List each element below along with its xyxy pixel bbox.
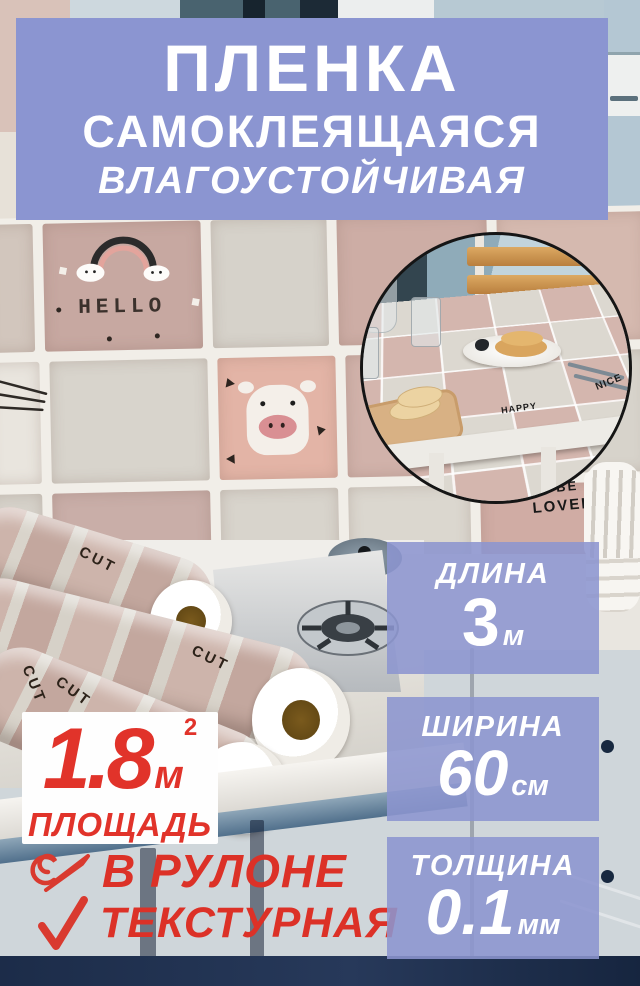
- table-leg: [541, 447, 556, 501]
- spec-thickness-unit: мм: [518, 909, 561, 942]
- feature-in-roll-label: В РУЛОНЕ: [102, 844, 347, 898]
- checkmark-icon: [36, 894, 90, 952]
- table-film-surface: [360, 275, 632, 504]
- cut-text: CUT: [52, 673, 94, 710]
- area-unit: м: [154, 753, 184, 798]
- feature-in-roll: В РУЛОНЕ: [24, 842, 347, 900]
- bg-appliance: [606, 52, 640, 116]
- spec-width-value: 60: [437, 740, 508, 807]
- area-value: 1.8: [43, 716, 151, 802]
- film-roll-core: [282, 700, 320, 740]
- roll-icon: [24, 842, 96, 900]
- spec-badge-length: ДЛИНА 3 м: [387, 542, 599, 674]
- product-image: HELLO: [0, 0, 640, 986]
- vase: [360, 261, 397, 333]
- bg-appliance-slot: [610, 96, 638, 101]
- rainbow-icon: [73, 229, 174, 283]
- area-value-line: 1.8 м 2: [22, 716, 218, 808]
- area-label: ПЛОЩАДЬ: [22, 806, 218, 844]
- cabinet-base-strip: [0, 956, 640, 986]
- wall-tile: [210, 218, 329, 348]
- table-leg: [429, 453, 444, 504]
- cow-face-icon: [217, 356, 338, 480]
- spec-length-value: 3: [462, 587, 500, 658]
- banner: ПЛЕНКА САМОКЛЕЯЩАЯСЯ ВЛАГОУСТОЙЧИВАЯ: [16, 18, 608, 220]
- feature-textured: ТЕКСТУРНАЯ: [36, 894, 398, 952]
- wall-tile: [0, 224, 35, 353]
- cabinet-knob: [601, 740, 614, 753]
- banner-tagline: ВЛАГОУСТОЙЧИВАЯ: [98, 161, 526, 203]
- bg-wall-right: [604, 0, 640, 236]
- hello-tile-art: HELLO: [42, 220, 203, 351]
- spec-width-unit: см: [511, 770, 549, 803]
- area-superscript: 2: [184, 714, 197, 742]
- chair-slat: [467, 247, 617, 266]
- spec-length-unit: м: [503, 620, 524, 653]
- cabinet-knob: [601, 870, 614, 883]
- drinking-glass: [411, 297, 441, 347]
- cut-text: CUT: [189, 642, 232, 675]
- banner-subtitle: САМОКЛЕЯЩАЯСЯ: [82, 108, 541, 155]
- drinking-glass: [360, 327, 379, 379]
- table-inset-photo: HAPPY NICE BE LOVELY: [360, 232, 632, 504]
- whiskers-icon: [0, 368, 51, 429]
- wall-tile: [49, 358, 210, 483]
- spec-badge-thickness: ТОЛЩИНА 0.1 мм: [387, 837, 599, 959]
- spec-badge-width: ШИРИНА 60 см: [387, 697, 599, 821]
- cut-text: CUT: [76, 543, 119, 576]
- spec-thickness-value: 0.1: [426, 879, 515, 946]
- area-box: 1.8 м 2 ПЛОЩАДЬ: [22, 712, 218, 844]
- feature-textured-label: ТЕКСТУРНАЯ: [100, 899, 398, 948]
- hello-text: HELLO: [78, 295, 198, 321]
- banner-title: ПЛЕНКА: [163, 35, 460, 102]
